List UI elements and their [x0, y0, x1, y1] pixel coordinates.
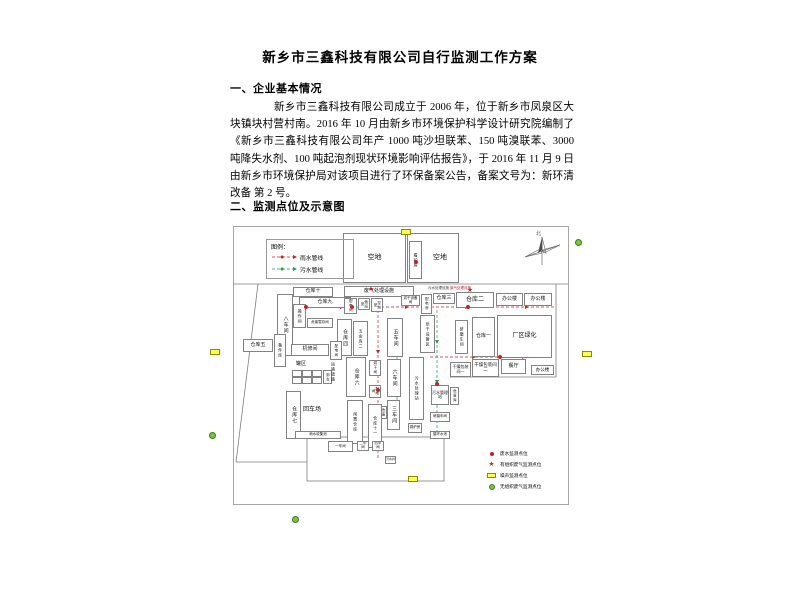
pipeline-sample-icon	[271, 254, 297, 260]
room: 烘干设备间	[401, 295, 420, 306]
room: 一车间	[328, 441, 353, 452]
yellow-rect-icon	[486, 473, 497, 478]
pipeline-legend-title: 图例：	[271, 242, 349, 251]
tank-cell	[312, 370, 322, 377]
section-heading-basic-info: 一、企业基本情况	[230, 80, 322, 96]
room: 污水处理站	[409, 357, 424, 420]
noise-monitor-marker	[401, 229, 411, 235]
pipeline-sample-icon	[271, 266, 297, 272]
room: 污水井	[385, 456, 396, 464]
room: 办公楼	[496, 293, 523, 306]
north-arrow-icon	[520, 232, 564, 268]
stack-gas-monitor-marker: ★	[368, 287, 374, 293]
room: 仓库五	[243, 339, 273, 352]
fugitive-gas-monitor-marker	[575, 239, 582, 246]
room: 二车间	[357, 441, 369, 451]
room: 机修间	[291, 344, 329, 356]
room: 控制室	[371, 298, 383, 312]
page-title: 新乡市三鑫科技有限公司自行监测工作方案	[0, 46, 800, 66]
room: 仓库一	[472, 317, 495, 357]
compass-icon: 北	[520, 232, 564, 268]
fugitive-gas-monitor-marker	[292, 516, 299, 523]
room: 办公楼	[531, 365, 554, 375]
room: 污水管理站	[431, 385, 449, 405]
room: 三车间	[387, 400, 400, 430]
green-circle-icon	[486, 484, 497, 490]
pipeline-legend-item: 雨水管线	[271, 251, 349, 263]
red-star-icon: ★	[486, 462, 497, 468]
pipeline-legend-label: 污水管线	[300, 265, 323, 274]
noise-monitor-marker	[210, 349, 220, 355]
monitoring-legend-item: 无组织废气监测点位	[486, 481, 582, 492]
wastewater-monitor-marker	[304, 305, 308, 309]
fugitive-gas-monitor-marker	[209, 432, 216, 439]
noise-monitor-marker	[582, 351, 592, 357]
room: 循环水池	[430, 431, 450, 439]
room: 干燥包装间一	[450, 362, 471, 377]
area-label: 回车场	[303, 407, 321, 413]
monitoring-legend-label: 噪声监测点位	[500, 473, 528, 479]
room: 干燥包装间二	[472, 359, 499, 377]
red-dot-icon	[486, 452, 497, 456]
room: 六车间	[387, 359, 401, 397]
tank-cell	[302, 370, 312, 377]
monitoring-legend-label: 废水监测点位	[500, 451, 528, 457]
monitoring-legend-item: ★有组织废气监测点位	[486, 459, 582, 470]
monitoring-legend-label: 无组织废气监测点位	[500, 484, 541, 490]
pipeline-legend-label: 雨水管线	[300, 253, 323, 262]
room: 烘干间	[369, 360, 381, 376]
compass-north-label: 北	[536, 230, 541, 237]
wastewater-monitor-marker	[350, 305, 354, 309]
monitoring-legend-item: 噪声监测点位	[486, 470, 582, 481]
room: 五金库二	[353, 321, 368, 356]
tank-cell	[292, 377, 302, 384]
tank-cell	[312, 377, 322, 384]
wastewater-monitor-marker	[376, 388, 380, 392]
room: 四车间	[372, 441, 384, 451]
wastewater-monitor-marker	[498, 355, 502, 359]
room: 危废库	[450, 387, 459, 405]
tank-cell	[292, 370, 302, 377]
room: 厂区绿化	[497, 315, 552, 358]
room: 危废暂存间	[307, 318, 333, 328]
room: 餐厅	[501, 359, 526, 374]
room: 仓库十	[293, 287, 333, 297]
pipeline-legend-item: 污水管线	[271, 263, 349, 275]
room: 烘干设备区	[420, 315, 435, 353]
wastewater-monitor-marker	[435, 382, 439, 386]
document-page: 新乡市三鑫科技有限公司自行监测工作方案 一、企业基本情况 新乡市三鑫科技有限公司…	[0, 0, 800, 600]
wastewater-monitor-marker	[414, 260, 418, 264]
monitoring-legend-item: 废水监测点位	[486, 448, 582, 459]
room: 仓库三	[433, 293, 455, 304]
tank-cell	[302, 377, 312, 384]
room: 配电房	[421, 294, 432, 314]
room: 雨水收集池	[295, 431, 341, 439]
room: 配电间	[330, 341, 342, 360]
company-intro-paragraph: 新乡市三鑫科技有限公司成立于 2006 年，位于新乡市凤泉区大块镇块村营村南。2…	[230, 99, 574, 202]
room: 仓库六	[346, 357, 366, 397]
room: 研磨车间	[430, 412, 450, 422]
room: 五车间	[387, 318, 403, 357]
room: 备件库	[274, 334, 286, 367]
stack-gas-monitor-marker: ★	[467, 288, 473, 294]
room: 研磨车间	[455, 320, 468, 354]
room: 闲置仓库	[347, 400, 363, 444]
monitoring-legend: 废水监测点位★有组织废气监测点位噪声监测点位无组织废气监测点位	[486, 448, 582, 492]
pipeline-legend: 图例： 雨水管线 污水管线	[266, 239, 354, 279]
room: 值班室	[358, 298, 370, 310]
room: 仓库二	[456, 292, 494, 308]
noise-monitor-marker	[408, 476, 418, 482]
area-label: 运输道路	[331, 362, 335, 382]
area-label: 污水处理设施	[428, 287, 449, 291]
section-heading-monitoring-points: 二、监测点位及示意图	[230, 198, 345, 214]
monitoring-legend-label: 有组织废气监测点位	[500, 462, 541, 468]
pipeline-legend-rows: 雨水管线 污水管线	[271, 251, 349, 275]
room: 锅炉房	[408, 423, 422, 433]
area-label: 罐区	[296, 362, 306, 367]
room: 办公楼	[524, 293, 552, 306]
wastewater-monitor-marker	[466, 305, 470, 309]
